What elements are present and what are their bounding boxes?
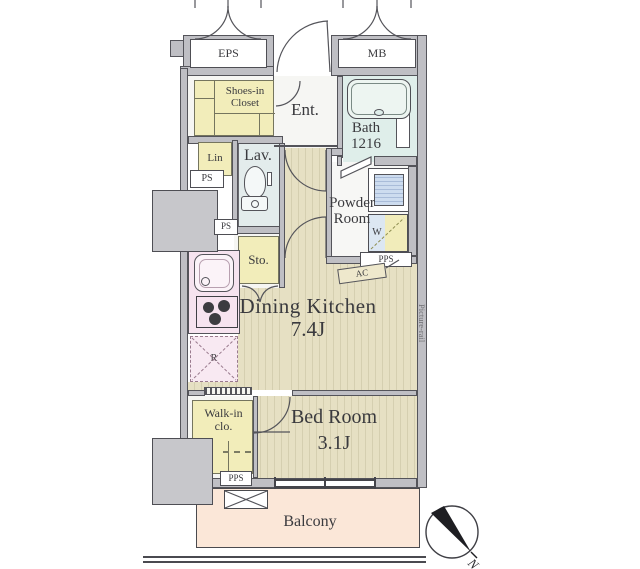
dining-kitchen-size-text: 7.4J — [291, 318, 325, 341]
kitchen-stove — [196, 296, 238, 328]
pps-bottom-box: PPS — [220, 471, 252, 486]
service-column-wall — [408, 166, 417, 256]
bedroom-name: Bed Room — [284, 407, 384, 429]
powder-line2: Room — [334, 211, 371, 227]
entrance-label: Ent. — [283, 100, 327, 120]
bath-bottom-wall-right — [374, 156, 417, 166]
lav-bottom-wall — [232, 226, 283, 234]
front-door-leaf — [327, 21, 330, 72]
bath-label: Bath 1216 — [338, 119, 394, 153]
balcony-text: Balcony — [283, 513, 336, 530]
compass: N — [424, 503, 488, 569]
storage-label: Sto. — [248, 253, 269, 267]
storage-cabinet: Sto. — [238, 236, 279, 284]
cabinet-divider — [259, 113, 260, 137]
bedroom-text: Bed Room — [291, 407, 377, 429]
ground-line — [143, 561, 426, 563]
vanity-sink — [374, 174, 404, 206]
refrigerator-space: R — [190, 336, 238, 382]
floor-plan: Shoes-in Closet Sto. W R — [0, 0, 640, 569]
walkin-folding-door — [204, 387, 252, 395]
walkin-bedroom-wall — [253, 396, 258, 478]
walkin-divider — [228, 441, 229, 475]
stove-burner — [203, 302, 214, 313]
mb-label: MB — [368, 47, 387, 60]
bath-line2: 1216 — [351, 136, 381, 152]
window-mullion — [324, 477, 326, 489]
balcony-label: Balcony — [270, 512, 350, 532]
left-wall — [180, 68, 188, 488]
refrigerator-label: R — [211, 354, 218, 365]
window-mullion — [274, 477, 276, 489]
washer-label: W — [372, 228, 381, 239]
bath-line1: Bath — [352, 120, 380, 136]
stove-burner — [218, 300, 230, 312]
ps-mid-box: PS — [214, 219, 238, 235]
eps-label: EPS — [218, 47, 239, 60]
cabinet-divider — [214, 113, 275, 114]
toilet-knob — [251, 200, 259, 208]
bathtub-drain — [374, 109, 384, 116]
picture-rail-text: Picture-rail — [417, 304, 426, 342]
picture-rail-label: Picture-rail — [416, 284, 427, 362]
bath-bottom-wall-left — [337, 156, 342, 166]
ps-mid-label: PS — [221, 222, 231, 232]
toilet-tank — [241, 196, 268, 211]
structural-column-lower — [152, 438, 213, 505]
mb-shaft: MB — [338, 39, 416, 68]
structural-column-upper — [152, 190, 218, 252]
ground-line — [143, 556, 426, 558]
ps-upper-label: PS — [201, 174, 212, 185]
compass-circle — [426, 506, 478, 558]
dining-kitchen-size: 7.4J — [268, 318, 348, 340]
toilet-lever — [267, 172, 272, 186]
toilet-bowl — [244, 166, 266, 198]
dining-kitchen-name: Dining Kitchen — [238, 294, 378, 318]
hallway-floor — [285, 148, 326, 262]
shoes-closet-cabinet: Shoes-in Closet — [194, 80, 274, 136]
powder-line1: Powder — [329, 195, 375, 211]
stove-burner — [209, 313, 221, 325]
balcony-equipment-box — [224, 490, 268, 509]
entrance-step-line — [274, 145, 337, 147]
ps-upper-box: PS — [190, 170, 224, 188]
bathtub — [347, 79, 411, 119]
north-needle — [431, 506, 471, 552]
hanger-pipe — [223, 451, 251, 454]
shoes-closet-line2: Closet — [231, 98, 259, 110]
ac-label: AC — [355, 268, 369, 279]
bedroom-top-wall-left — [188, 390, 205, 396]
wall-step — [170, 40, 184, 57]
right-wall — [417, 35, 427, 488]
front-door-arc — [277, 21, 328, 72]
north-label: N — [464, 555, 482, 569]
bedroom-size: 3.1J — [300, 433, 368, 455]
lavatory-label: Lav. — [236, 146, 280, 166]
bedroom-top-wall-right — [292, 390, 417, 396]
needle-tail — [471, 552, 477, 558]
dining-kitchen-text: Dining Kitchen — [239, 295, 376, 318]
linen-label: Lin — [207, 153, 222, 165]
entrance-text: Ent. — [291, 101, 319, 119]
kitchen-faucet — [201, 277, 210, 286]
shoes-closet-label: Shoes-in Closet — [215, 83, 275, 113]
walkin-label: Walk-in clo. — [195, 405, 252, 435]
window-mullion — [374, 477, 376, 489]
powder-room-label: Powder Room — [328, 194, 376, 228]
eps-shaft: EPS — [190, 39, 267, 68]
walkin-line2: clo. — [215, 420, 233, 433]
bedroom-size-text: 3.1J — [318, 433, 351, 455]
cabinet-divider — [195, 98, 214, 99]
pps-bottom-label: PPS — [228, 474, 243, 484]
kitchen-sink — [194, 254, 234, 292]
lavatory-text: Lav. — [244, 147, 272, 164]
